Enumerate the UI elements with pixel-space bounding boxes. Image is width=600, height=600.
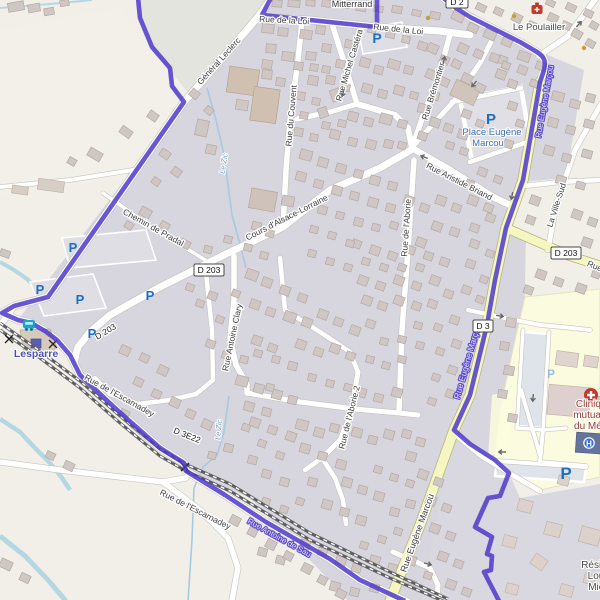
svg-text:P: P xyxy=(88,326,97,341)
svg-text:D 2: D 2 xyxy=(450,0,464,7)
svg-text:P: P xyxy=(547,367,555,381)
svg-text:P: P xyxy=(146,288,155,303)
svg-text:mutualiste: mutualiste xyxy=(573,410,600,421)
svg-text:Le Poulailler: Le Poulailler xyxy=(513,22,565,33)
svg-text:D 3: D 3 xyxy=(476,321,490,331)
svg-text:D 203: D 203 xyxy=(555,248,578,258)
svg-text:P: P xyxy=(36,282,45,297)
svg-text:P: P xyxy=(372,30,381,46)
svg-text:D 203: D 203 xyxy=(198,265,221,275)
svg-text:du Médoc: du Médoc xyxy=(574,421,600,432)
svg-text:Place Eugène: Place Eugène xyxy=(462,127,521,138)
svg-text:Mic: Mic xyxy=(588,582,600,593)
svg-text:P: P xyxy=(76,292,85,307)
svg-text:P: P xyxy=(560,464,571,483)
svg-text:Le Zic: Le Zic xyxy=(213,419,224,440)
svg-text:Lou: Lou xyxy=(588,571,600,582)
svg-text:Lesparre: Lesparre xyxy=(14,348,59,360)
svg-text:P: P xyxy=(69,240,78,255)
svg-text:P: P xyxy=(486,111,496,128)
svg-text:H: H xyxy=(586,440,592,449)
svg-text:Résid: Résid xyxy=(581,560,600,571)
svg-text:Mitterrand: Mitterrand xyxy=(332,0,373,9)
svg-text:Clinique: Clinique xyxy=(576,399,600,410)
svg-text:Marcou: Marcou xyxy=(472,138,504,149)
